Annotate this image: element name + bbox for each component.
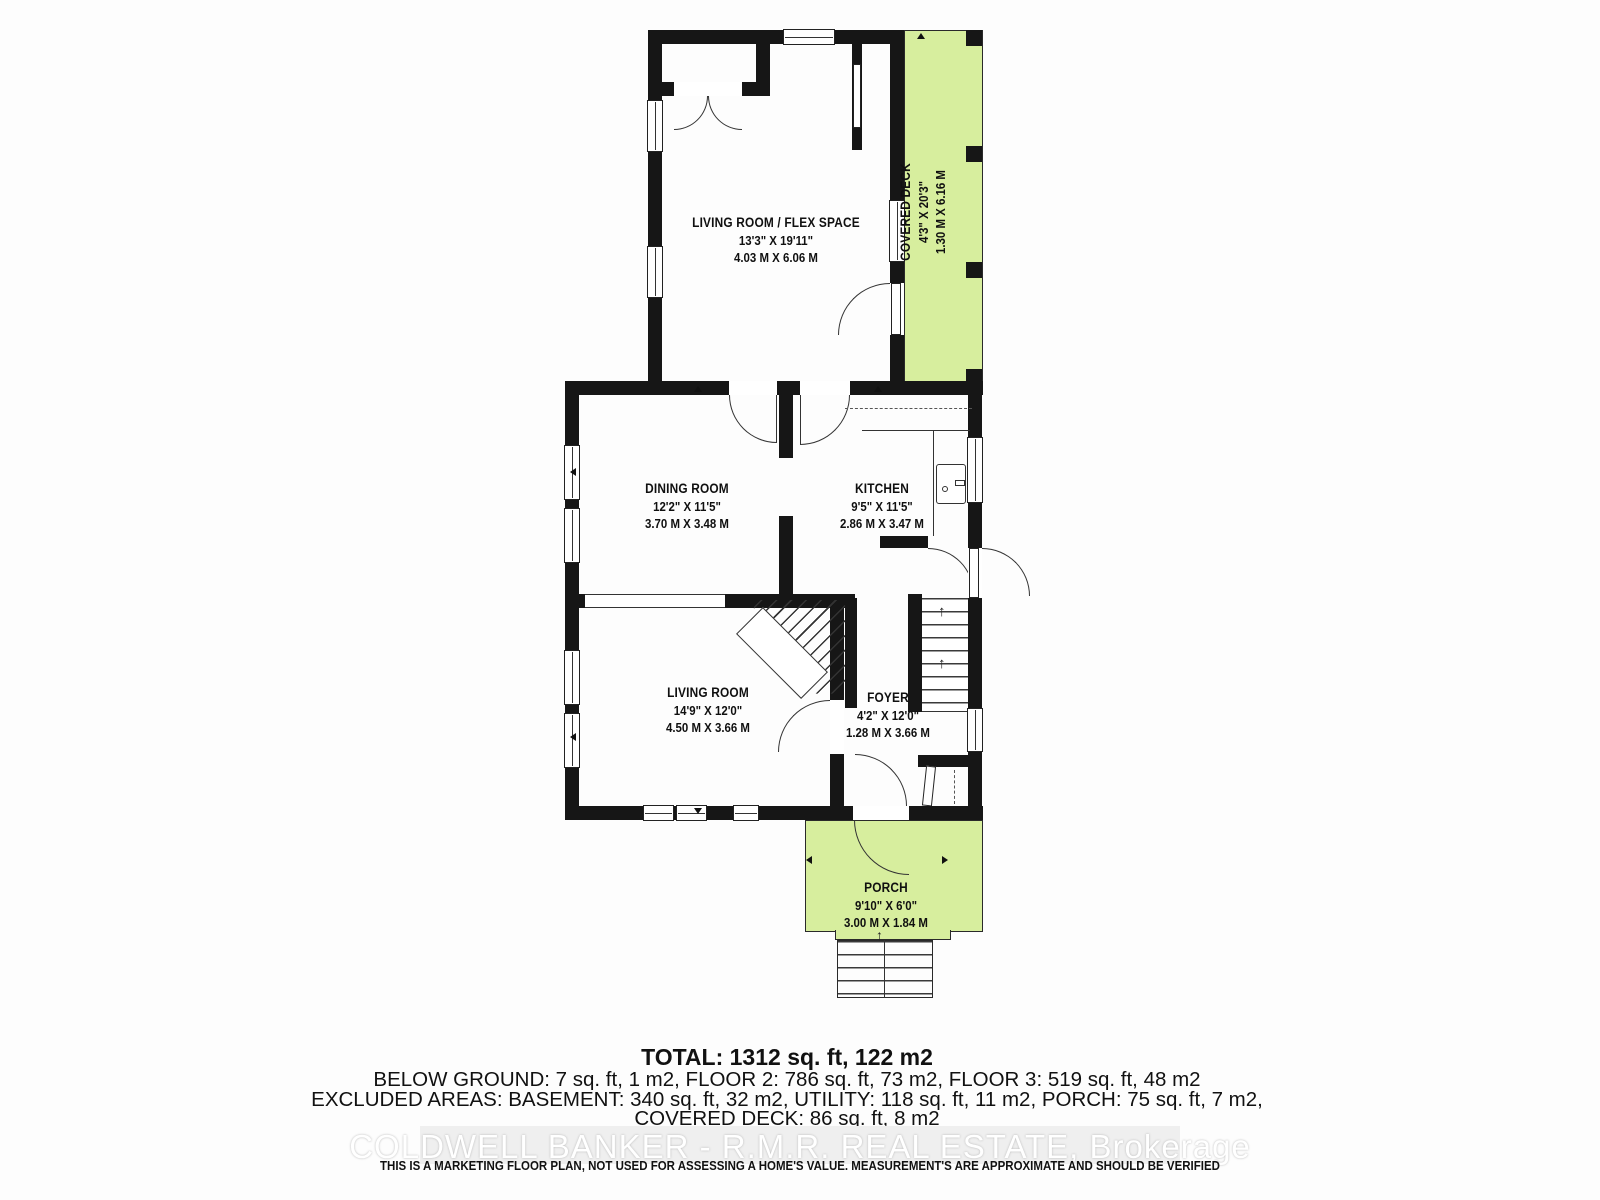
room-dim-m: 3.70 M X 3.48 M — [599, 515, 775, 532]
room-dim-ft: 9'5" X 11'5" — [794, 498, 970, 515]
room-label-flex: LIVING ROOM / FLEX SPACE 13'3" X 19'11" … — [688, 214, 864, 266]
room-dim-ft: 4'2" X 12'0" — [809, 707, 967, 724]
window-top — [783, 29, 835, 45]
room-dim-m: 1.28 M X 3.66 M — [809, 724, 967, 741]
deck-door-arc — [838, 283, 890, 335]
stairs-up-arrow-icon: ↑ — [938, 656, 946, 671]
room-name: LIVING ROOM — [620, 684, 796, 702]
window-foyer-side — [967, 708, 983, 752]
front-door-arc-interior — [855, 754, 907, 806]
closet-wall-bottom-left — [656, 82, 674, 96]
room-label-porch: PORCH 9'10" X 6'0" 3.00 M X 1.84 M — [798, 879, 974, 931]
dim-tick — [570, 468, 576, 476]
room-dim-m: 1.30 M X 6.16 M — [932, 128, 949, 295]
foyer-closet-dashed-line — [954, 770, 955, 804]
room-label-living: LIVING ROOM 14'9" X 12'0" 4.50 M X 3.66 … — [620, 684, 796, 736]
kitchen-door-opening — [800, 381, 850, 395]
room-label-kitchen: KITCHEN 9'5" X 11'5" 2.86 M X 3.47 M — [794, 480, 970, 532]
kitchen-upper-cabinet-dashed-line — [845, 408, 972, 409]
porch-steps — [837, 940, 933, 998]
room-name: LIVING ROOM / FLEX SPACE — [688, 214, 864, 232]
dim-tick — [874, 386, 882, 392]
room-dim-m: 4.03 M X 6.06 M — [688, 249, 864, 266]
dim-tick — [942, 856, 948, 864]
wall-dining-kitchen-upper — [779, 395, 793, 458]
dining-door-arc — [729, 395, 777, 443]
disclaimer-text: THIS IS A MARKETING FLOOR PLAN, NOT USED… — [340, 1159, 1260, 1173]
room-name: FOYER — [809, 689, 967, 707]
kitchen-door-arc — [800, 395, 850, 445]
window-dining-2 — [564, 508, 580, 563]
closet-door-arc-right — [708, 96, 742, 130]
window-living-bottom-3 — [733, 805, 759, 821]
room-label-dining: DINING ROOM 12'2" X 11'5" 3.70 M X 3.48 … — [599, 480, 775, 532]
deck-post — [966, 30, 982, 46]
dim-tick — [917, 33, 925, 39]
dim-tick — [806, 856, 812, 864]
cased-opening-dining-living — [585, 594, 725, 608]
porch-notch — [835, 930, 951, 940]
front-door-opening — [853, 806, 909, 820]
dim-tick — [694, 808, 702, 814]
window-upper-left-2 — [647, 246, 663, 298]
summary-total: TOTAL: 1312 sq. ft, 122 m2 — [287, 1044, 1287, 1070]
window-upper-left-1 — [647, 100, 663, 152]
stairs-up-arrow-icon: ↑ — [938, 604, 946, 619]
room-dim-ft: 14'9" X 12'0" — [620, 702, 796, 719]
wall-kitchen-bottom — [880, 536, 928, 548]
room-label-foyer: FOYER 4'2" X 12'0" 1.28 M X 3.66 M — [809, 689, 967, 741]
room-label-deck: COVERED DECK 4'3" X 20'3" 1.30 M X 6.16 … — [897, 128, 975, 295]
room-dim-m: 4.50 M X 3.66 M — [620, 719, 796, 736]
dim-tick — [694, 386, 702, 392]
dining-door-opening — [729, 381, 777, 395]
wall-bottom — [565, 806, 983, 820]
window-living-1 — [564, 650, 580, 705]
room-name: COVERED DECK — [897, 128, 915, 295]
room-name: DINING ROOM — [599, 480, 775, 498]
kitchen-counter-edge-h — [862, 430, 970, 431]
room-name: PORCH — [798, 879, 974, 897]
room-dim-ft: 13'3" X 19'11" — [688, 232, 864, 249]
nook-sliding-window — [853, 64, 861, 128]
window-living-bottom-1 — [643, 805, 674, 821]
closet-door-opening — [674, 82, 742, 96]
wall-top — [648, 30, 904, 44]
porch-steps-centerline — [884, 940, 885, 998]
room-dim-m: 3.00 M X 1.84 M — [798, 914, 974, 931]
side-door-leaf — [969, 548, 979, 598]
window-living-bottom-2 — [676, 805, 707, 821]
room-name: KITCHEN — [794, 480, 970, 498]
side-door-arc-exterior — [982, 548, 1030, 596]
room-dim-ft: 4'3" X 20'3" — [915, 128, 932, 295]
room-dim-ft: 12'2" X 11'5" — [599, 498, 775, 515]
room-dim-ft: 9'10" X 6'0" — [798, 897, 974, 914]
dim-tick — [570, 733, 576, 741]
closet-wall-bottom-right — [742, 82, 770, 96]
room-dim-m: 2.86 M X 3.47 M — [794, 515, 970, 532]
closet-door-arc-left — [674, 96, 708, 130]
summary-line: BELOW GROUND: 7 sq. ft, 1 m2, FLOOR 2: 7… — [287, 1070, 1287, 1090]
floor-plan-canvas: ↑ ↑ — [0, 0, 1600, 1200]
wall-dining-living-left-stub — [565, 594, 585, 608]
foyer-closet-door — [922, 766, 936, 807]
